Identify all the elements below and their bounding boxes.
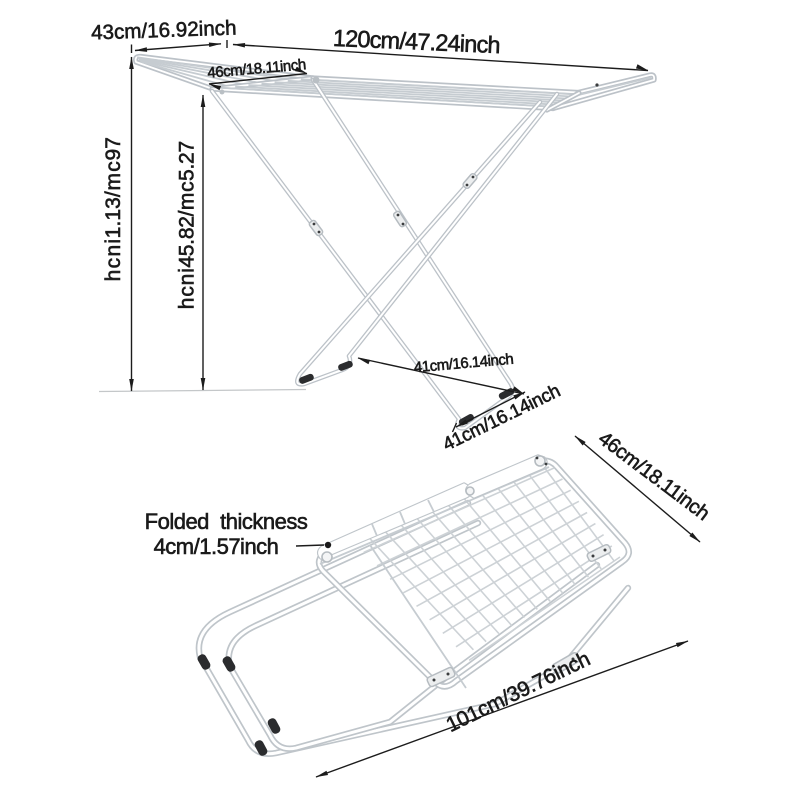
svg-text:5: 5	[176, 245, 199, 257]
svg-text:1: 1	[102, 227, 125, 239]
svg-text:.: .	[102, 221, 125, 227]
svg-text:h: h	[176, 298, 199, 310]
svg-text:9: 9	[102, 149, 125, 161]
svg-text:7: 7	[102, 137, 125, 149]
svg-text:3: 3	[102, 197, 125, 209]
svg-text:n: n	[102, 245, 125, 257]
svg-text:.: .	[176, 164, 199, 170]
svg-text:m: m	[176, 193, 199, 211]
svg-text:5: 5	[176, 169, 199, 181]
svg-text:43cm/16.92inch: 43cm/16.92inch	[91, 16, 237, 44]
svg-text:c: c	[176, 181, 199, 192]
svg-text:1: 1	[102, 209, 125, 221]
svg-text:m: m	[102, 173, 125, 191]
svg-text:4: 4	[176, 256, 199, 268]
svg-text:c: c	[102, 161, 125, 172]
svg-text:n: n	[176, 274, 199, 286]
svg-text:41cm/16.14inch: 41cm/16.14inch	[413, 351, 514, 377]
svg-text:8: 8	[176, 227, 199, 239]
svg-text:h: h	[102, 270, 125, 282]
svg-text:46cm/18.11inch: 46cm/18.11inch	[594, 427, 713, 524]
svg-text:i: i	[102, 239, 125, 244]
svg-text:c: c	[176, 286, 199, 297]
svg-text:Folded thickness: Folded thickness	[145, 509, 308, 534]
svg-text:7: 7	[176, 141, 199, 153]
svg-text:2: 2	[176, 216, 199, 228]
svg-text:4cm/1.57inch: 4cm/1.57inch	[154, 534, 279, 559]
svg-text:120cm/47.24inch: 120cm/47.24inch	[332, 25, 500, 58]
svg-text:2: 2	[176, 152, 199, 164]
svg-text:/: /	[102, 191, 125, 197]
svg-text:.: .	[176, 239, 199, 245]
svg-text:/: /	[176, 210, 199, 216]
svg-text:i: i	[176, 268, 199, 273]
svg-text:c: c	[102, 258, 125, 269]
